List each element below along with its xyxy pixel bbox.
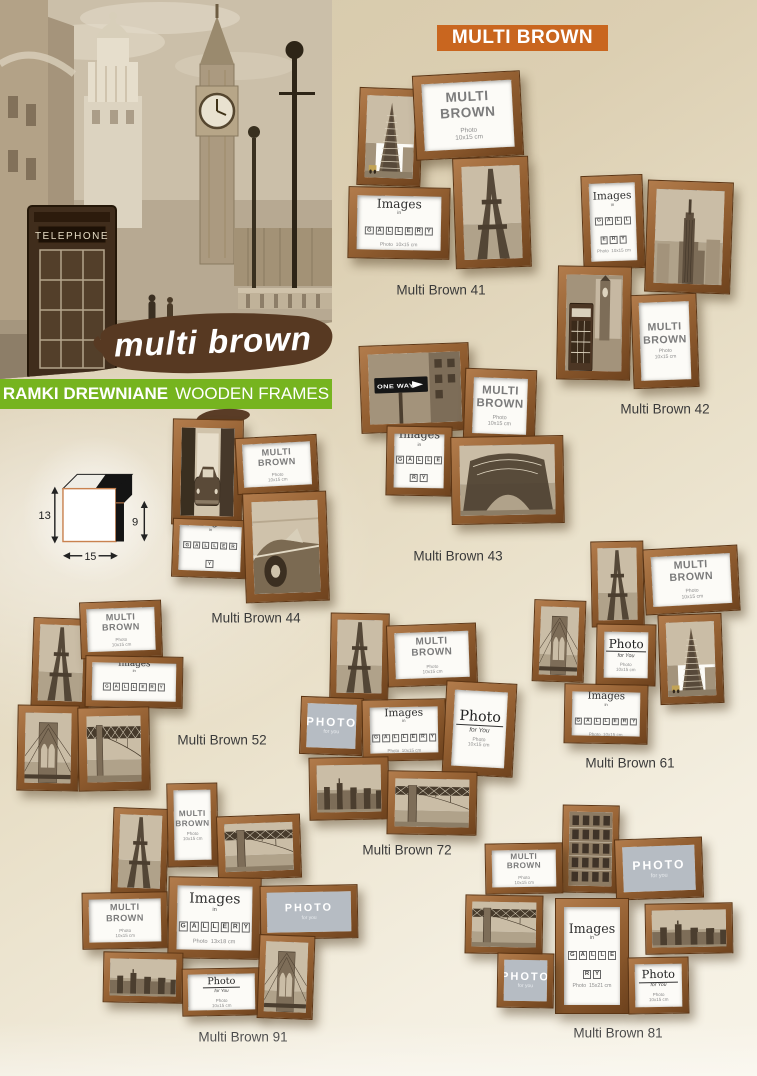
frame-opening: PHOTOfor you bbox=[306, 703, 357, 749]
insert-card-images-gallery: ImagesinGALLERYPhoto 10x15 cm bbox=[394, 434, 445, 489]
photo-frame-skyline bbox=[645, 902, 734, 955]
frame-opening bbox=[597, 548, 637, 621]
photo-art-brooklyn bbox=[539, 606, 579, 675]
frame-opening bbox=[224, 822, 294, 872]
photo-frame-empire bbox=[644, 180, 734, 295]
insert-frame-images: ImagesinGALLERYPhoto 10x15 cm bbox=[171, 518, 249, 580]
photo-art-bridge bbox=[395, 778, 470, 827]
product-multi-brown-44: MULTIBROWNPhoto10x15 cmImagesinGALLERYPh… bbox=[158, 417, 330, 607]
gallery-tiles: GALLERY bbox=[394, 447, 445, 485]
insert-frame-multi-brown: MULTIBROWNPhoto10x15 cm bbox=[412, 70, 524, 161]
gallery-tiles: GALLERY bbox=[564, 943, 620, 980]
insert-card-multi-brown: MULTIBROWNPhoto10x15 cm bbox=[651, 553, 733, 607]
frame-opening: Photofor YouPhoto10x15 cm bbox=[188, 973, 256, 1010]
frame-opening bbox=[565, 275, 623, 372]
photo-art-flatiron bbox=[666, 621, 717, 697]
product-label: Multi Brown 43 bbox=[413, 549, 502, 564]
insert-card-photo-for-you: Photofor YouPhoto10x15 cm bbox=[188, 973, 256, 1010]
photo-frame-eiffel bbox=[110, 807, 169, 896]
insert-card-photo-for-you: Photofor YouPhoto10x15 cm bbox=[451, 690, 508, 769]
product-label: Multi Brown 72 bbox=[362, 843, 451, 858]
photo-art-skyline bbox=[652, 909, 727, 947]
frame-opening: ImagesinGALLERYPhoto 10x15 cm bbox=[370, 706, 439, 753]
frame-opening bbox=[24, 713, 71, 784]
insert-frame-images: ImagesinGALLERYPhoto 10x15 cm bbox=[385, 425, 452, 496]
frame-opening: Photofor YouPhoto10x15 cm bbox=[604, 632, 649, 679]
product-label: Multi Brown 91 bbox=[198, 1030, 287, 1045]
photo-art-eiffel bbox=[38, 624, 85, 701]
frame-opening bbox=[472, 901, 537, 947]
photo-art-skyline bbox=[110, 958, 177, 996]
insert-card-multi-brown: MULTIBROWNPhoto10x15 cm bbox=[394, 631, 470, 680]
insert-card-multi-brown: MULTIBROWNPhoto10x15 cm bbox=[639, 301, 692, 381]
product-label: Multi Brown 41 bbox=[396, 283, 485, 298]
insert-frame-photo-white: Photofor YouPhoto10x15 cm bbox=[628, 956, 690, 1014]
photo-frame-phonebox bbox=[556, 265, 632, 380]
frame-opening bbox=[365, 95, 416, 179]
frame-opening bbox=[459, 444, 555, 516]
insert-frame-images: ImagesinGALLERYPhoto 10x15 cm bbox=[85, 655, 184, 709]
insert-frame-multi-brown: MULTIBROWNPhoto10x15 cm bbox=[463, 368, 538, 444]
photo-frame-classic-car bbox=[242, 491, 330, 604]
insert-frame-multi-brown: MULTIBROWNPhoto10x15 cm bbox=[485, 842, 564, 894]
frame-opening: ImagesinGALLERYPhoto 15x21 cm bbox=[564, 907, 620, 1005]
gallery-tiles: GALLERY bbox=[371, 724, 437, 744]
product-multi-brown-43: ONE WAYMULTIBROWNPhoto10x15 cmImagesinGA… bbox=[358, 328, 564, 540]
product-label: Multi Brown 52 bbox=[177, 733, 266, 748]
insert-card-photo-gray: PHOTOfor you bbox=[267, 891, 352, 932]
gallery-tiles: GALLERY bbox=[102, 675, 166, 694]
insert-card-multi-brown: MULTIBROWNPhoto10x15 cm bbox=[472, 377, 528, 435]
photo-art-bridge bbox=[86, 716, 141, 783]
product-multi-brown-52: MULTIBROWNPhoto10x15 cmImagesinGALLERYPh… bbox=[14, 598, 259, 793]
insert-frame-multi-brown: MULTIBROWNPhoto10x15 cm bbox=[79, 600, 163, 660]
frame-opening: PHOTOfor you bbox=[267, 891, 352, 932]
photo-frame-bridge bbox=[77, 706, 150, 791]
photo-art-brooklyn bbox=[264, 941, 308, 1012]
insert-frame-multi-brown: MULTIBROWNPhoto10x15 cm bbox=[386, 622, 478, 687]
photo-frame-eiffel-base bbox=[450, 435, 565, 525]
insert-frame-multi-brown: MULTIBROWNPhoto10x15 cm bbox=[630, 293, 699, 389]
photo-art-eiffel bbox=[336, 620, 382, 694]
frame-opening: ImagesinGALLERYPhoto 10x15 cm bbox=[572, 691, 641, 736]
frame-opening: ImagesinGALLERYPhoto 10x15 cm bbox=[589, 182, 638, 262]
photo-frame-eiffel bbox=[590, 541, 644, 628]
photo-frame-building bbox=[561, 805, 620, 894]
frame-opening: MULTIBROWNPhoto10x15 cm bbox=[492, 849, 557, 887]
photo-frame-car-alley bbox=[171, 418, 244, 525]
frame-opening bbox=[264, 941, 308, 1012]
gallery-tiles: GALLERY bbox=[177, 914, 251, 934]
product-label: Multi Brown 42 bbox=[620, 402, 709, 417]
photo-art-bridge bbox=[472, 901, 537, 947]
frame-opening bbox=[251, 500, 320, 594]
frame-opening: MULTIBROWNPhoto10x15 cm bbox=[173, 790, 211, 861]
frame-opening bbox=[86, 716, 141, 783]
frame-opening: ImagesinGALLERYPhoto 10x15 cm bbox=[357, 195, 442, 250]
photo-frame-eiffel bbox=[452, 156, 532, 270]
photo-frame-bridge bbox=[216, 814, 302, 881]
insert-card-photo-gray: PHOTOfor you bbox=[504, 960, 548, 1002]
frame-opening: ONE WAY bbox=[368, 351, 462, 424]
photo-frame-brooklyn bbox=[257, 934, 316, 1020]
photo-frame-eiffel bbox=[329, 612, 390, 700]
frame-opening bbox=[395, 778, 470, 827]
insert-frame-images: ImagesinGALLERYPhoto 10x15 cm bbox=[580, 174, 645, 270]
frame-opening: ImagesinGALLERYPhoto 13x18 cm bbox=[176, 885, 252, 950]
product-multi-brown-91: MULTIBROWNPhoto10x15 cmMULTIBROWNPhoto10… bbox=[78, 783, 360, 1033]
insert-card-images-gallery: ImagesinGALLERYPhoto 13x18 cm bbox=[176, 885, 252, 950]
frame-opening: MULTIBROWNPhoto10x15 cm bbox=[89, 898, 162, 942]
photo-art-car_alley bbox=[180, 428, 235, 517]
frame-opening: PHOTOfor you bbox=[504, 960, 548, 1002]
insert-card-multi-brown: MULTIBROWNPhoto10x15 cm bbox=[242, 441, 312, 487]
insert-card-multi-brown: MULTIBROWNPhoto10x15 cm bbox=[89, 898, 162, 942]
frame-opening bbox=[118, 814, 163, 888]
insert-card-images-gallery: ImagesinGALLERYPhoto 10x15 cm bbox=[572, 691, 641, 736]
gallery-tiles: GALLERY bbox=[573, 708, 638, 728]
insert-card-multi-brown: MULTIBROWNPhoto10x15 cm bbox=[86, 607, 155, 652]
insert-frame-photo-white: Photofor YouPhoto10x15 cm bbox=[442, 680, 518, 778]
frame-opening bbox=[568, 812, 612, 887]
photo-art-phonebox bbox=[565, 275, 623, 372]
photo-art-bridge bbox=[224, 822, 294, 872]
frame-opening: MULTIBROWNPhoto10x15 cm bbox=[394, 631, 470, 680]
insert-frame-photo-white: Photofor YouPhoto10x15 cm bbox=[595, 623, 656, 686]
frame-opening bbox=[653, 189, 724, 285]
insert-frame-images: ImagesinGALLERYPhoto 15x21 cm bbox=[555, 898, 629, 1014]
photo-frame-brooklyn bbox=[532, 599, 587, 683]
insert-card-images-gallery: ImagesinGALLERYPhoto 15x21 cm bbox=[564, 907, 620, 1005]
frame-opening: ImagesinGALLERYPhoto 10x15 cm bbox=[394, 434, 445, 489]
gallery-tiles: GALLERY bbox=[178, 533, 241, 572]
frame-opening bbox=[180, 428, 235, 517]
photo-art-brooklyn bbox=[24, 713, 71, 784]
photo-art-eiffel bbox=[118, 814, 163, 888]
frame-opening: MULTIBROWNPhoto10x15 cm bbox=[421, 80, 514, 152]
frame-opening bbox=[539, 606, 579, 675]
photo-frame-bridge bbox=[464, 894, 543, 954]
photo-art-classic_car bbox=[251, 500, 320, 594]
product-multi-brown-61: MULTIBROWNPhoto10x15 cmPhotofor YouPhoto… bbox=[533, 535, 757, 750]
insert-frame-multi-brown: MULTIBROWNPhoto10x15 cm bbox=[642, 545, 740, 616]
insert-card-photo-for-you: Photofor YouPhoto10x15 cm bbox=[635, 964, 683, 1008]
frame-opening: MULTIBROWNPhoto10x15 cm bbox=[86, 607, 155, 652]
insert-card-images-gallery: ImagesinGALLERYPhoto 10x15 cm bbox=[370, 706, 439, 753]
frame-opening bbox=[336, 620, 382, 694]
frame-opening: MULTIBROWNPhoto10x15 cm bbox=[651, 553, 733, 607]
insert-card-multi-brown: MULTIBROWNPhoto10x15 cm bbox=[173, 790, 211, 861]
photo-frame-oneway: ONE WAY bbox=[358, 342, 471, 434]
catalog-page: { "page": { "badge_label": "MULTI BROWN"… bbox=[0, 0, 757, 1076]
insert-card-multi-brown: MULTIBROWNPhoto10x15 cm bbox=[421, 80, 514, 152]
insert-frame-images: ImagesinGALLERYPhoto 13x18 cm bbox=[167, 876, 261, 960]
products-layer: MULTIBROWNPhoto10x15 cmImagesinGALLERYPh… bbox=[0, 0, 757, 1076]
insert-card-images-gallery: ImagesinGALLERYPhoto 10x15 cm bbox=[589, 182, 638, 262]
insert-card-photo-for-you: Photofor YouPhoto10x15 cm bbox=[604, 632, 649, 679]
frame-opening: MULTIBROWNPhoto10x15 cm bbox=[639, 301, 692, 381]
photo-art-eiffel bbox=[461, 165, 522, 260]
frame-opening: MULTIBROWNPhoto10x15 cm bbox=[472, 377, 528, 435]
gallery-tiles: GALLERY bbox=[590, 208, 637, 246]
insert-frame-images: ImagesinGALLERYPhoto 10x15 cm bbox=[361, 698, 446, 761]
insert-frame-photo-gray: PHOTOfor you bbox=[614, 836, 704, 900]
insert-frame-multi-brown: MULTIBROWNPhoto10x15 cm bbox=[235, 434, 320, 495]
insert-frame-images: ImagesinGALLERYPhoto 10x15 cm bbox=[347, 186, 450, 260]
frame-opening: MULTIBROWNPhoto10x15 cm bbox=[242, 441, 312, 487]
photo-frame-brooklyn bbox=[16, 704, 79, 791]
gallery-tiles: GALLERY bbox=[364, 218, 434, 238]
frame-opening bbox=[666, 621, 717, 697]
photo-art-building bbox=[568, 812, 612, 887]
photo-art-flatiron bbox=[365, 95, 416, 179]
frame-opening: Photofor YouPhoto10x15 cm bbox=[451, 690, 508, 769]
product-multi-brown-42: ImagesinGALLERYPhoto 10x15 cmMULTIBROWNP… bbox=[556, 170, 748, 390]
product-multi-brown-81: MULTIBROWNPhoto10x15 cmPHOTOfor youImage… bbox=[465, 805, 755, 1017]
insert-frame-photo-gray: PHOTOfor you bbox=[299, 696, 364, 756]
photo-art-eiffel_base bbox=[459, 444, 555, 516]
product-multi-brown-41: MULTIBROWNPhoto10x15 cmImagesinGALLERYPh… bbox=[348, 73, 530, 270]
photo-frame-flatiron bbox=[657, 613, 724, 705]
photo-art-oneway: ONE WAY bbox=[368, 351, 462, 424]
insert-frame-photo-gray: PHOTOfor you bbox=[260, 884, 359, 940]
insert-frame-multi-brown: MULTIBROWNPhoto10x15 cm bbox=[82, 891, 169, 949]
photo-art-empire bbox=[653, 189, 724, 285]
photo-frame-skyline bbox=[103, 951, 184, 1003]
frame-opening: ImagesinGALLERYPhoto 10x15 cm bbox=[92, 662, 177, 701]
frame-opening: Photofor YouPhoto10x15 cm bbox=[635, 964, 683, 1008]
frame-opening bbox=[110, 958, 177, 996]
insert-frame-photo-white: Photofor YouPhoto10x15 cm bbox=[182, 967, 262, 1016]
product-label: Multi Brown 61 bbox=[585, 756, 674, 771]
frame-opening bbox=[652, 909, 727, 947]
insert-frame-multi-brown: MULTIBROWNPhoto10x15 cm bbox=[166, 783, 218, 868]
product-label: Multi Brown 81 bbox=[573, 1026, 662, 1041]
photo-frame-bridge bbox=[386, 770, 477, 836]
insert-card-multi-brown: MULTIBROWNPhoto10x15 cm bbox=[492, 849, 557, 887]
frame-opening: ImagesinGALLERYPhoto 10x15 cm bbox=[178, 525, 242, 572]
photo-art-eiffel bbox=[597, 548, 637, 621]
insert-card-photo-gray: PHOTOfor you bbox=[622, 845, 696, 892]
frame-opening: PHOTOfor you bbox=[622, 845, 696, 892]
insert-card-images-gallery: ImagesinGALLERYPhoto 10x15 cm bbox=[178, 525, 242, 572]
insert-card-images-gallery: ImagesinGALLERYPhoto 10x15 cm bbox=[92, 662, 177, 701]
insert-frame-images: ImagesinGALLERYPhoto 10x15 cm bbox=[563, 683, 648, 744]
insert-card-photo-gray: PHOTOfor you bbox=[306, 703, 357, 749]
frame-opening bbox=[38, 624, 85, 701]
frame-opening bbox=[461, 165, 522, 260]
insert-frame-photo-gray: PHOTOfor you bbox=[497, 953, 555, 1009]
insert-card-images-gallery: ImagesinGALLERYPhoto 10x15 cm bbox=[357, 195, 442, 250]
